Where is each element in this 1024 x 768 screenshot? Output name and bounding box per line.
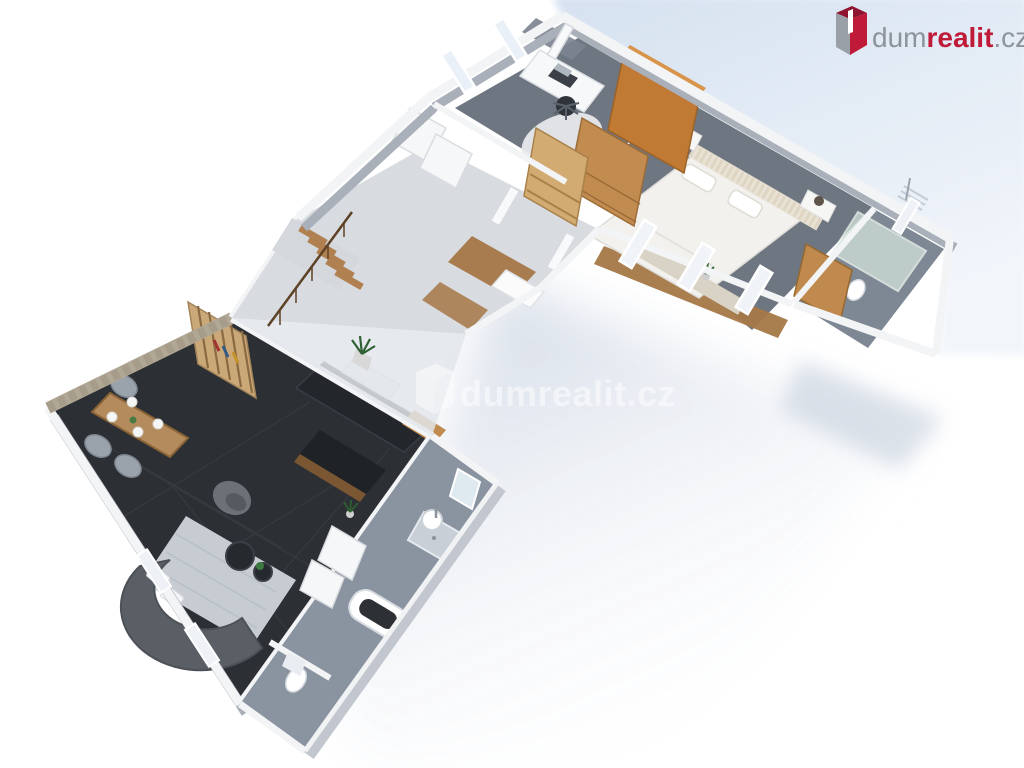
logo-text-prefix: dum <box>872 22 926 53</box>
floorplan-render: dumrealit.cz dumrealit.cz <box>0 0 1024 768</box>
logo-icon-gap <box>848 9 853 34</box>
logo-text-highlight: realit <box>926 22 993 53</box>
logo-text-suffix: .cz <box>993 22 1024 53</box>
logo-house-icon <box>836 6 867 55</box>
table-plant <box>256 562 264 570</box>
watermark-text: dumrealit.cz <box>460 373 676 414</box>
logo-text: dumrealit.cz <box>872 22 1024 53</box>
watermark-house-icon <box>416 364 454 414</box>
centerpiece <box>130 417 137 424</box>
